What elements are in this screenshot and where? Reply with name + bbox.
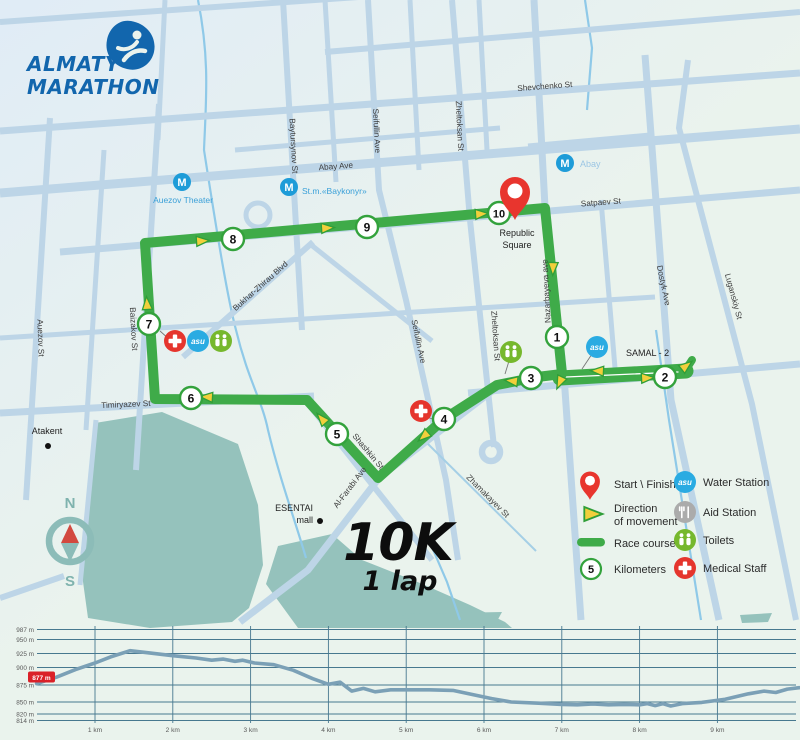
race-laps: 1 lap [363, 566, 438, 597]
metro-icon: M [173, 173, 191, 191]
legend-race-course: Race course [614, 538, 676, 550]
elevation-xtick-label: 9 km [710, 727, 725, 734]
km-marker-label: 8 [230, 233, 237, 247]
race-map-page: 1 2 3 4 5 6 7 8 9 10 asu asu M M M Shevc… [0, 0, 800, 740]
elevation-ytick-label: 814 m [16, 718, 34, 725]
elevation-xtick-label: 4 km [321, 727, 336, 734]
toilets-icon [210, 330, 232, 352]
label-auezov-theater: Auezov Theater [153, 195, 213, 205]
km-marker-label: 6 [188, 392, 195, 406]
map-canvas: 1 2 3 4 5 6 7 8 9 10 asu asu M M M Shevc… [0, 0, 800, 740]
legend-direction-2: of movement [614, 516, 678, 528]
asu-label: asu [590, 343, 604, 352]
label-esentai: ESENTAI [275, 503, 313, 513]
legend-medical-icon [674, 557, 696, 579]
elevation-xtick-label: 1 km [88, 727, 103, 734]
medical-icon [410, 400, 432, 422]
elevation-xtick-label: 8 km [632, 727, 647, 734]
elevation-ytick-label: 925 m [16, 651, 34, 658]
water-station-icon: asu [586, 336, 608, 358]
esentai-dot [317, 518, 323, 524]
toilets-icon [500, 341, 522, 363]
asu-label: asu [191, 337, 205, 346]
km-marker-label: 7 [146, 318, 153, 332]
km-marker-8: 8 [222, 228, 244, 250]
legend-kilometers: Kilometers [614, 564, 666, 576]
compass-north-label: N [65, 495, 76, 512]
elevation-xtick-label: 3 km [243, 727, 258, 734]
legend-aid-icon [674, 501, 696, 523]
metro-label: M [284, 182, 293, 194]
legend-direction-1: Direction [614, 503, 657, 515]
legend-medical: Medical Staff [703, 563, 767, 575]
km-marker-7: 7 [138, 313, 160, 335]
elevation-xtick-label: 5 km [399, 727, 414, 734]
legend-toilets: Toilets [703, 535, 735, 547]
legend-km-number: 5 [588, 564, 594, 576]
km-marker-3: 3 [520, 367, 542, 389]
water-station-icon: asu [187, 330, 209, 352]
legend-aid: Aid Station [703, 507, 756, 519]
medical-icon [164, 330, 186, 352]
logo-line2: MARATHON [27, 75, 159, 99]
compass-south-label: S [65, 573, 75, 590]
park-botanical [80, 412, 263, 628]
km-marker-2: 2 [654, 366, 676, 388]
elevation-xtick-label: 7 km [555, 727, 570, 734]
elevation-ytick-label: 987 m [16, 627, 34, 634]
legend-water-icon: asu [674, 471, 696, 493]
elevation-ytick-label: 850 m [16, 699, 34, 706]
atakent-dot [45, 443, 51, 449]
start-elevation-label: 877 m [32, 675, 51, 682]
label-baykonyr: St.m.«Baykonyr» [302, 186, 367, 196]
label-republic-2: Square [502, 240, 531, 250]
km-marker-1: 1 [546, 326, 568, 348]
elevation-ytick-label: 900 m [16, 665, 34, 672]
km-marker-6: 6 [180, 387, 202, 409]
metro-label: M [177, 177, 186, 189]
label-atakent: Atakent [32, 426, 63, 436]
label-samal: SAMAL - 2 [626, 348, 669, 358]
street-label-auezov: Auezov St [35, 319, 45, 357]
legend-course-icon [577, 538, 605, 547]
km-marker-label: 9 [364, 221, 371, 235]
km-marker-label: 5 [334, 428, 341, 442]
legend-water: Water Station [703, 477, 769, 489]
logo-line1: ALMATY [25, 52, 122, 76]
km-marker-4: 4 [433, 408, 455, 430]
km-marker-label: 1 [554, 331, 561, 345]
km-marker-label: 2 [662, 371, 669, 385]
km-marker-9: 9 [356, 216, 378, 238]
legend-toilets-icon [674, 529, 696, 551]
km-marker-label: 4 [441, 413, 448, 427]
metro-icon: M [280, 178, 298, 196]
elevation-xtick-label: 6 km [477, 727, 492, 734]
km-marker-label: 3 [528, 372, 535, 386]
elevation-ytick-label: 875 m [16, 682, 34, 689]
asu-label: asu [678, 478, 692, 487]
label-esentai-mall: mall [296, 515, 313, 525]
km-marker-label: 10 [493, 209, 505, 221]
elevation-ytick-label: 950 m [16, 637, 34, 644]
label-abay-metro: Abay [580, 159, 601, 169]
race-distance: 10K [343, 513, 457, 573]
metro-label: M [560, 158, 569, 170]
elevation-xtick-label: 2 km [166, 727, 181, 734]
metro-icon: M [556, 154, 574, 172]
legend-start-finish: Start \ Finish [614, 479, 676, 491]
km-marker-5: 5 [326, 423, 348, 445]
label-republic-1: Republic [499, 228, 535, 238]
